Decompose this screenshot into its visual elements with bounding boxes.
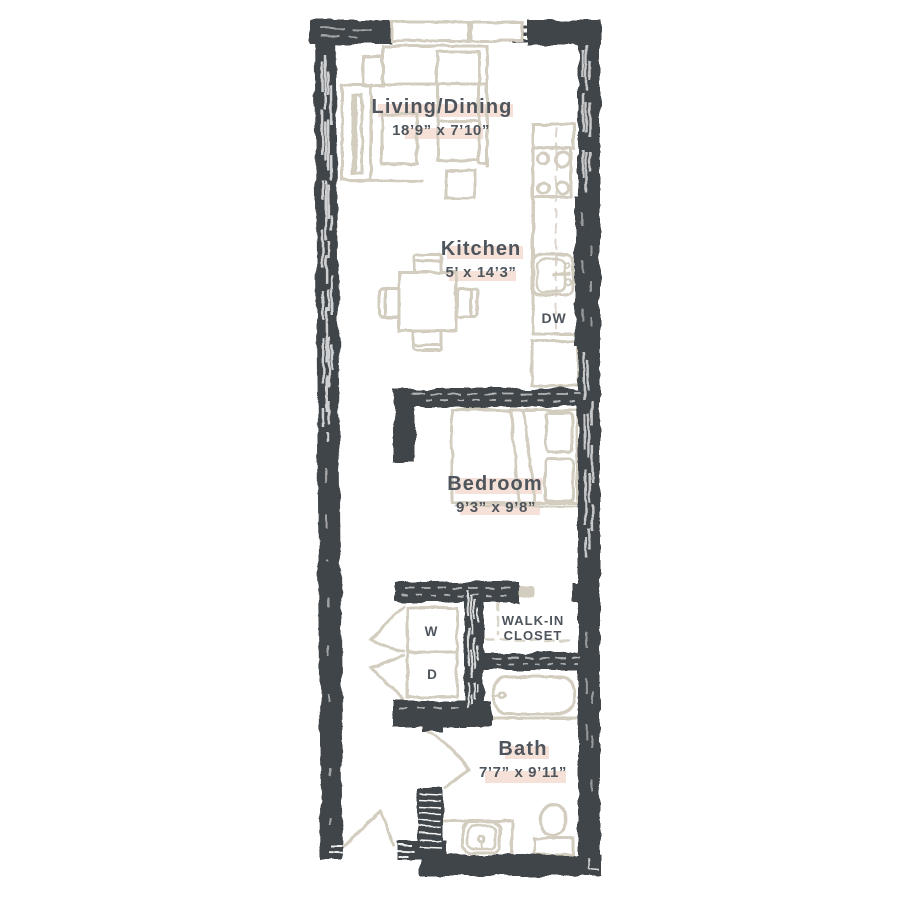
svg-text:W: W xyxy=(425,624,438,639)
svg-text:5’ x 14’3”: 5’ x 14’3” xyxy=(445,264,516,281)
svg-text:CLOSET: CLOSET xyxy=(504,628,563,643)
svg-text:DW: DW xyxy=(542,310,567,326)
svg-text:18’9” x 7’10”: 18’9” x 7’10” xyxy=(392,122,490,139)
svg-text:Kitchen: Kitchen xyxy=(441,238,521,260)
svg-text:7’7” x 9’11”: 7’7” x 9’11” xyxy=(479,764,567,781)
svg-text:Living/Dining: Living/Dining xyxy=(372,96,513,118)
svg-text:WALK-IN: WALK-IN xyxy=(502,613,565,628)
svg-text:Bath: Bath xyxy=(498,738,547,760)
svg-text:D: D xyxy=(427,667,437,682)
svg-text:Bedroom: Bedroom xyxy=(447,473,542,495)
svg-text:9’3” x 9’8”: 9’3” x 9’8” xyxy=(456,499,536,516)
